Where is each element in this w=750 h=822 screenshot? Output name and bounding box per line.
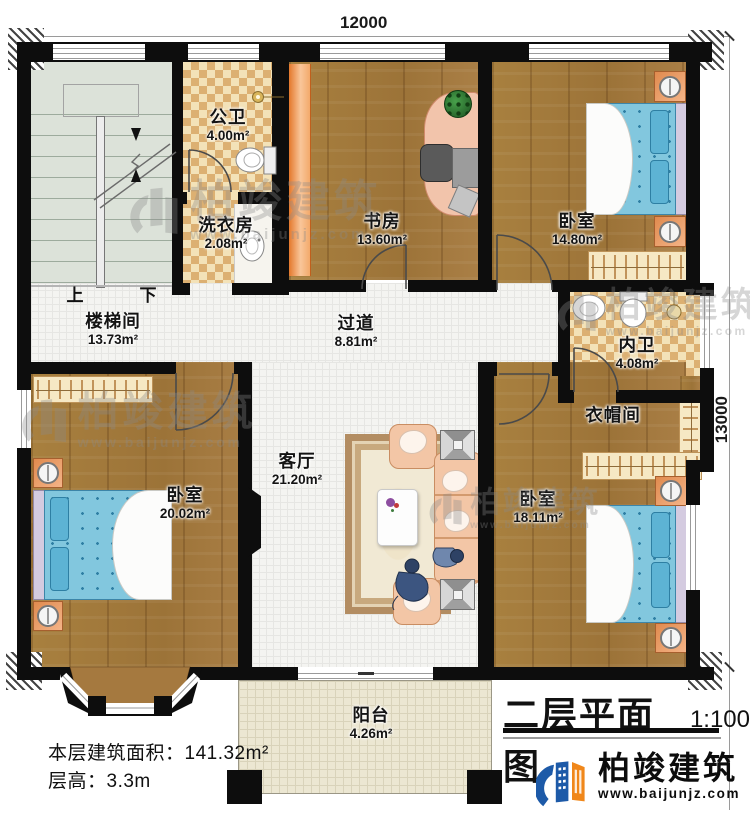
wall <box>552 362 570 376</box>
wall <box>478 376 494 667</box>
lamp-icon <box>660 480 682 502</box>
wall <box>17 42 31 680</box>
dimension-line-top <box>17 36 730 37</box>
bed-pillow <box>50 497 69 541</box>
room-label-bedroom-bl: 卧室20.02m² <box>160 486 210 521</box>
wall <box>198 667 298 680</box>
bay-window <box>58 667 202 716</box>
wall <box>686 42 700 283</box>
bed-pillow <box>650 160 669 204</box>
wall <box>552 280 570 292</box>
window <box>700 296 714 368</box>
brand-block: 柏竣建筑 www.baijunjz.com <box>536 752 740 810</box>
wall <box>408 280 478 292</box>
room-label-shufang: 书房13.60m² <box>357 212 407 247</box>
computer-monitor-icon <box>452 148 480 188</box>
window <box>17 390 31 448</box>
stair-landing <box>63 84 139 117</box>
wall <box>478 42 492 292</box>
wall <box>238 192 272 204</box>
dimension-top-label: 12000 <box>340 13 387 33</box>
brand-url: www.baijunjz.com <box>598 786 740 801</box>
wall <box>17 667 60 680</box>
tv-icon <box>248 487 261 557</box>
title-underline <box>503 728 719 733</box>
title-underline-thin <box>503 737 721 739</box>
lamp-icon <box>37 462 59 484</box>
wall <box>289 280 366 292</box>
room-label-yangtai: 阳台4.26m² <box>350 706 393 741</box>
wall <box>172 42 183 295</box>
stair-railing <box>96 116 105 288</box>
nightstand <box>655 476 687 506</box>
potted-plant-icon <box>444 90 472 118</box>
wall <box>558 292 570 403</box>
floor-area-text: 本层建筑面积：141.32m² <box>48 738 269 765</box>
room-label-bedroom-br: 卧室18.11m² <box>513 490 563 525</box>
nightstand <box>654 71 686 102</box>
wall <box>172 283 190 295</box>
room-label-guodao: 过道8.81m² <box>335 314 378 349</box>
window <box>53 44 145 60</box>
dimension-right-label: 13000 <box>712 396 732 443</box>
wall <box>17 362 176 374</box>
room-label-loutijian: 楼梯间13.73m² <box>85 312 141 347</box>
room-label-bedroom-tr: 卧室14.80m² <box>552 212 602 247</box>
wall <box>183 192 187 204</box>
wall <box>232 283 289 295</box>
window <box>188 44 259 60</box>
coffee-table <box>377 489 418 546</box>
room-label-keting: 客厅21.20m² <box>272 452 322 487</box>
stair-down-label: 下 <box>140 281 157 306</box>
brand-logo-icon <box>536 752 590 810</box>
floor-height-text: 层高：3.3m <box>48 766 151 793</box>
stool <box>440 430 475 460</box>
wall <box>478 280 497 292</box>
window <box>686 505 700 590</box>
wall <box>272 42 289 295</box>
wardrobe <box>588 251 687 283</box>
wall <box>558 390 574 403</box>
lamp-icon <box>37 605 59 627</box>
room-label-yimaojian: 衣帽间 <box>585 406 641 426</box>
bed-pillow <box>651 512 670 558</box>
window <box>529 44 669 60</box>
nightstand <box>33 458 63 488</box>
balcony-pillar <box>467 770 502 804</box>
bed-pillow <box>651 562 670 608</box>
wall <box>616 390 700 403</box>
room-label-neiwei: 内卫4.08m² <box>616 336 659 371</box>
wardrobe <box>679 394 702 456</box>
bed-pillow <box>50 547 69 591</box>
brand-name: 柏竣建筑 <box>598 752 740 786</box>
floor-plan-canvas: 12000 13000 上 下 <box>0 0 750 822</box>
wall <box>570 280 700 292</box>
room-label-xiyifang: 洗衣房2.08m² <box>198 216 254 251</box>
sliding-door-notch <box>358 672 374 675</box>
nightstand <box>655 623 687 653</box>
stair-up-label: 上 <box>67 281 84 306</box>
wall <box>433 667 714 680</box>
window <box>320 44 445 60</box>
lamp-icon <box>660 627 682 649</box>
nightstand <box>33 601 63 631</box>
bed-pillow <box>650 110 669 154</box>
balcony-pillar <box>227 770 262 804</box>
wardrobe <box>33 376 153 403</box>
room-label-gongwei: 公卫4.00m² <box>207 108 250 143</box>
lamp-icon <box>659 76 681 98</box>
desk-chair <box>420 144 454 182</box>
lamp-icon <box>659 221 681 243</box>
bookshelf-cabinet <box>289 64 311 276</box>
wall <box>478 362 497 376</box>
flower-decor-icon <box>386 498 395 507</box>
nightstand <box>654 216 686 247</box>
stool <box>440 579 475 610</box>
